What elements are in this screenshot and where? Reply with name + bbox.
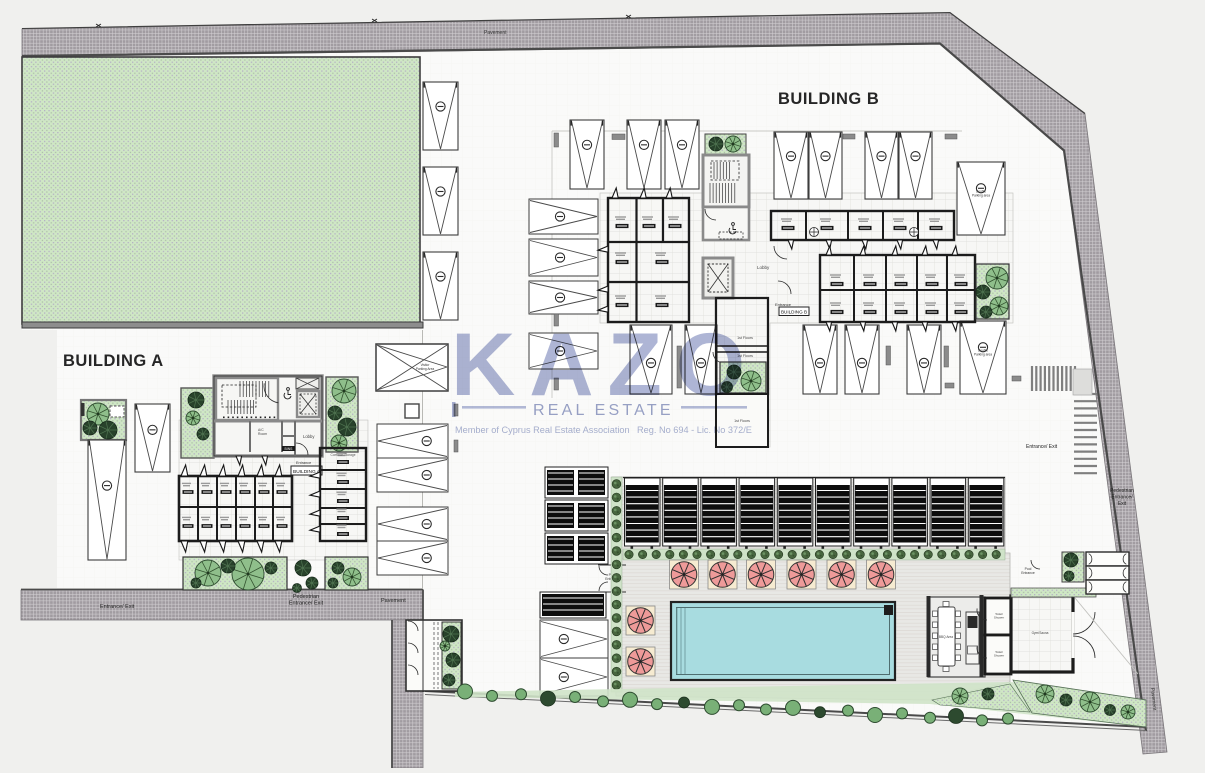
svg-text:Parking area: Parking area xyxy=(974,353,992,357)
svg-text:Entrance/ Exit: Entrance/ Exit xyxy=(1026,444,1058,450)
svg-text:Entrance/ Exit: Entrance/ Exit xyxy=(289,601,324,607)
svg-text:BUILDING B: BUILDING B xyxy=(781,310,807,315)
svg-text:Shower: Shower xyxy=(994,654,1004,658)
svg-text:KAZO: KAZO xyxy=(451,314,759,414)
svg-text:Room: Room xyxy=(258,432,267,436)
svg-text:BUILDING A: BUILDING A xyxy=(63,352,164,370)
svg-text:Entrance: Entrance xyxy=(296,461,311,465)
svg-text:Member of Cyprus Real Estate A: Member of Cyprus Real Estate Association xyxy=(455,425,630,435)
svg-text:Entrance/: Entrance/ xyxy=(1111,495,1133,501)
svg-text:Entrance: Entrance xyxy=(775,302,792,307)
svg-text:Lobby: Lobby xyxy=(303,434,315,439)
svg-text:Parking area: Parking area xyxy=(972,194,990,198)
svg-text:BINS: BINS xyxy=(285,447,294,451)
svg-text:Pavement: Pavement xyxy=(484,30,507,36)
svg-text:REAL ESTATE: REAL ESTATE xyxy=(533,402,674,419)
svg-text:Lobby: Lobby xyxy=(757,265,770,270)
svg-text:Shower: Shower xyxy=(994,616,1004,620)
svg-text:Parking Area: Parking Area xyxy=(416,367,434,371)
svg-text:Entrance/ Exit: Entrance/ Exit xyxy=(100,604,135,610)
svg-text:Common Storage: Common Storage xyxy=(331,453,356,457)
svg-text:Pedestrian: Pedestrian xyxy=(293,594,319,600)
svg-text:Reg. No 694 - Lic. No 372/E: Reg. No 694 - Lic. No 372/E xyxy=(637,425,752,435)
svg-text:1st Floors: 1st Floors xyxy=(734,419,750,423)
svg-text:Gym/Sauna: Gym/Sauna xyxy=(1032,631,1049,635)
svg-text:Exit: Exit xyxy=(1118,501,1127,507)
svg-text:Pedestrian: Pedestrian xyxy=(1110,488,1134,494)
svg-text:Entrance: Entrance xyxy=(1021,571,1035,575)
svg-text:BBQ Area: BBQ Area xyxy=(939,635,953,639)
svg-text:Pavement: Pavement xyxy=(381,598,406,604)
svg-text:BUILDING B: BUILDING B xyxy=(778,90,879,108)
